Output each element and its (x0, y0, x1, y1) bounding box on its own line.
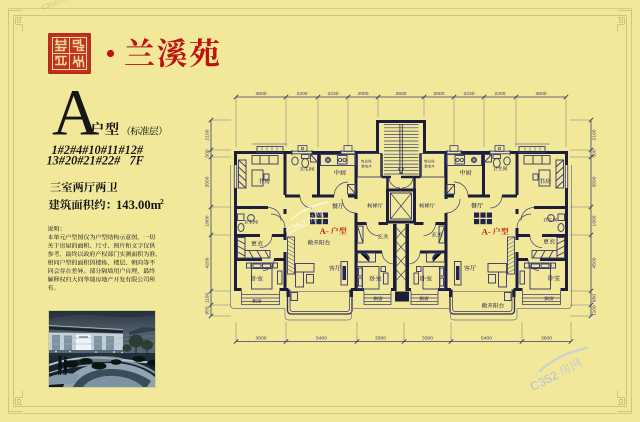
svg-text:2000: 2000 (358, 91, 369, 97)
svg-text:2200: 2200 (495, 91, 506, 97)
svg-text:3500: 3500 (592, 176, 598, 187)
svg-text:3600: 3600 (536, 91, 547, 97)
svg-text:2000: 2000 (434, 91, 445, 97)
svg-text:1100: 1100 (592, 305, 598, 316)
svg-text:A-: A- (482, 226, 491, 236)
svg-text:3600: 3600 (256, 91, 267, 97)
svg-text:4200: 4200 (205, 257, 211, 268)
svg-text:5400: 5400 (481, 336, 492, 342)
svg-text:500: 500 (592, 149, 598, 157)
svg-text:2100: 2100 (592, 129, 598, 140)
svg-text:2200: 2200 (297, 91, 308, 97)
svg-text:2230: 2230 (328, 91, 339, 97)
svg-text:2600: 2600 (396, 91, 407, 97)
svg-text:5400: 5400 (316, 336, 327, 342)
svg-text:143.00m: 143.00m (116, 198, 162, 212)
svg-text:3300: 3300 (375, 336, 386, 342)
svg-text:3600: 3600 (541, 336, 552, 342)
svg-text:950: 950 (205, 306, 211, 314)
svg-text:1900: 1900 (592, 215, 598, 226)
svg-text:1100: 1100 (205, 292, 211, 303)
svg-text:A: A (52, 78, 99, 150)
svg-text:A-: A- (320, 226, 329, 236)
svg-text:3300: 3300 (422, 336, 433, 342)
svg-text:4500: 4500 (592, 257, 598, 268)
svg-text:1900: 1900 (205, 215, 211, 226)
svg-text:13#20#21#22# 7F: 13#20#21#22# 7F (47, 153, 144, 167)
svg-text:950: 950 (592, 294, 598, 302)
svg-text:3500: 3500 (205, 176, 211, 187)
svg-text:500: 500 (205, 149, 211, 157)
svg-text:2: 2 (160, 197, 164, 206)
svg-text:2100: 2100 (205, 129, 211, 140)
svg-text:3600: 3600 (256, 336, 267, 342)
svg-text:2230: 2230 (464, 91, 475, 97)
